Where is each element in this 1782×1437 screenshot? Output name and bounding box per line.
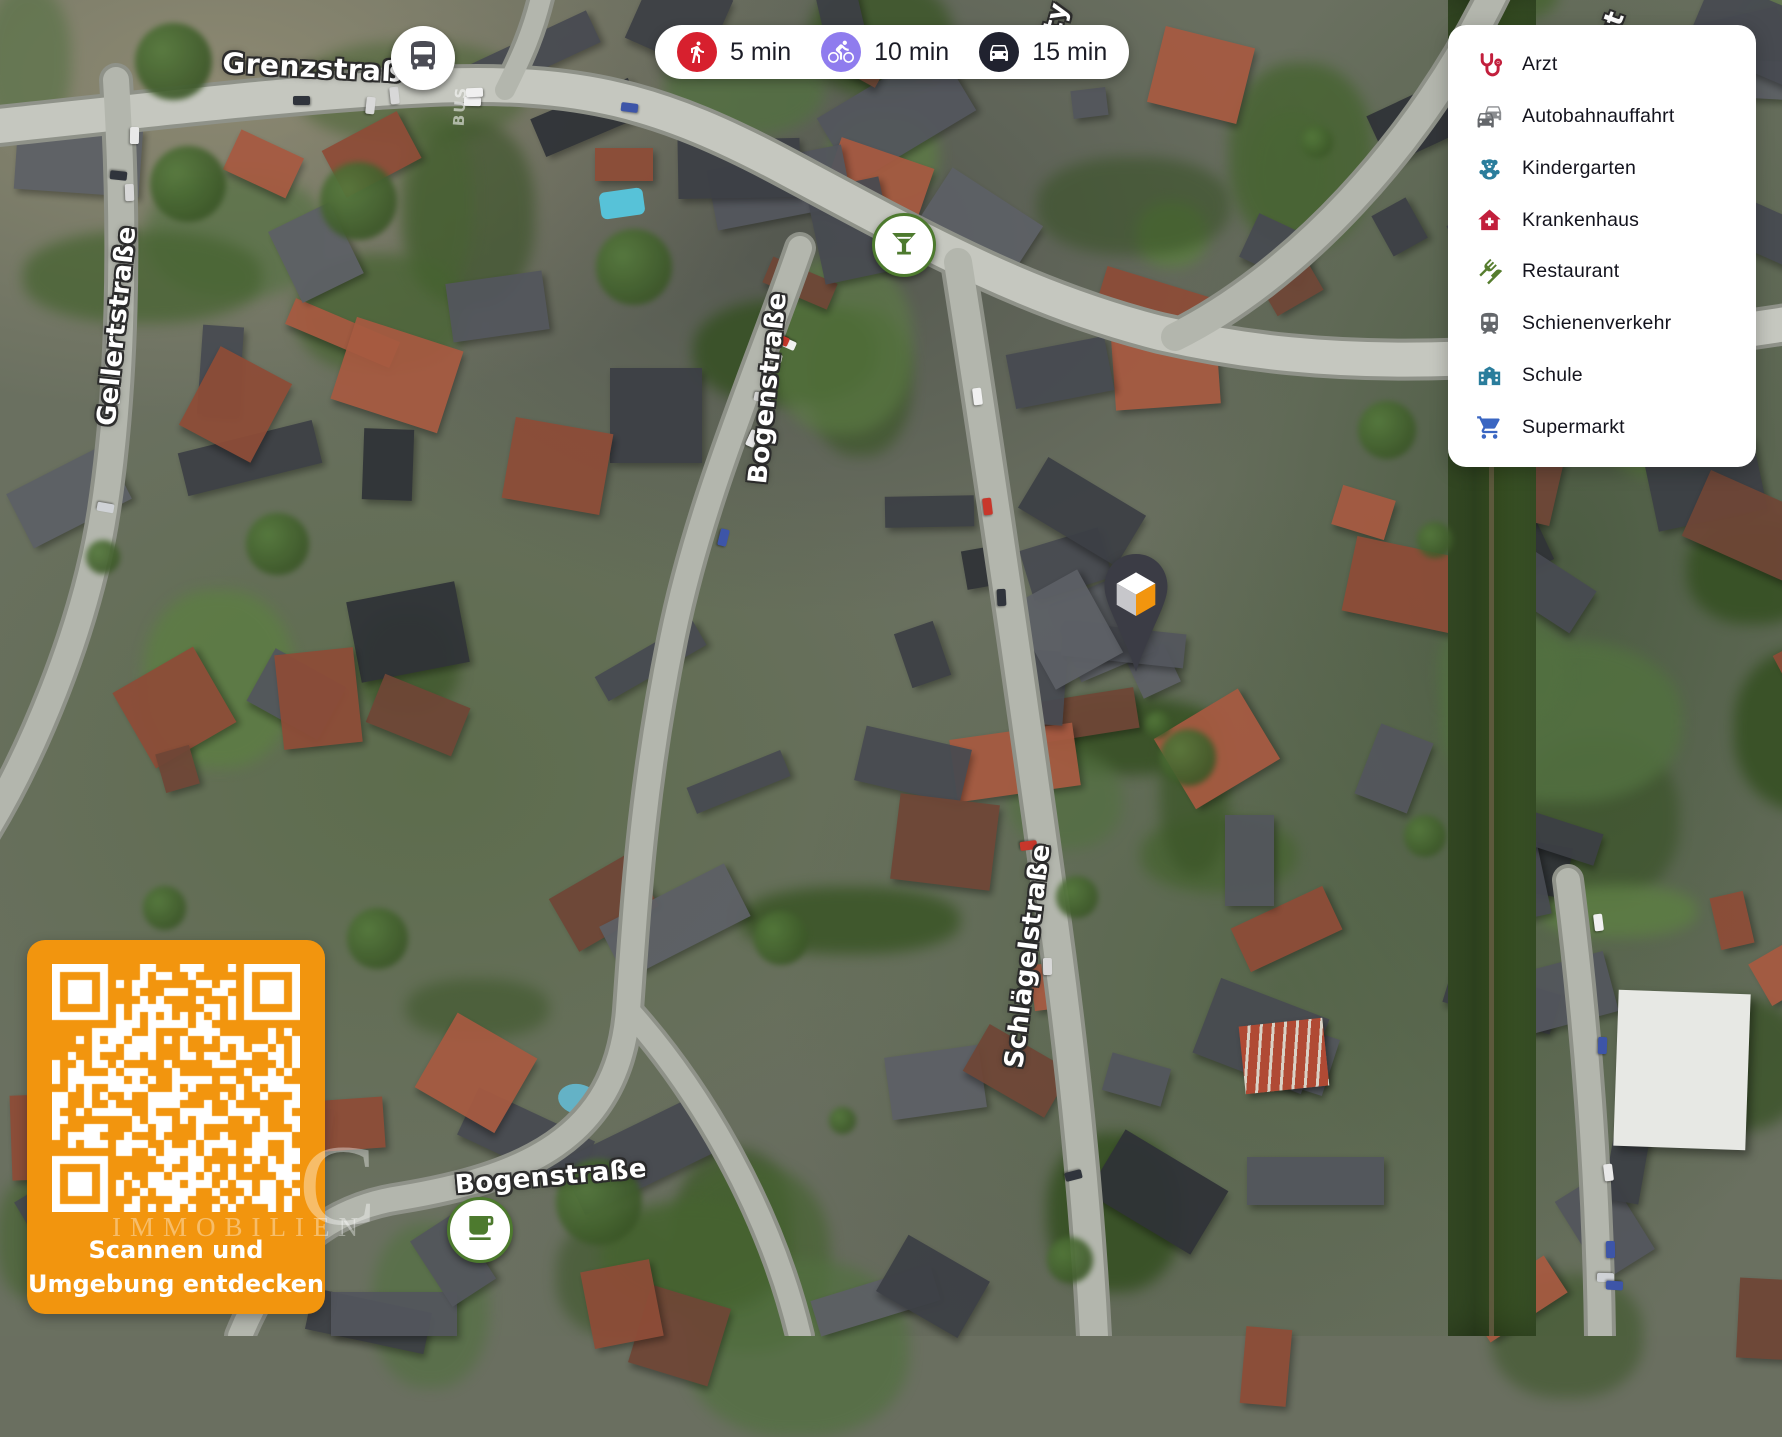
map-tree xyxy=(596,229,672,305)
map-tree xyxy=(86,540,120,574)
property-location-pin[interactable] xyxy=(1102,552,1170,683)
legend-item-krankenhaus[interactable]: Krankenhaus xyxy=(1476,207,1728,234)
map-car xyxy=(1064,1169,1083,1182)
legend-item-schienenverkehr[interactable]: Schienenverkehr xyxy=(1476,310,1728,337)
cafe-marker[interactable] xyxy=(447,1197,513,1263)
bus-icon xyxy=(405,38,441,79)
qr-caption-line1: Scannen und xyxy=(27,1236,325,1264)
legend-item-kindergarten[interactable]: Kindergarten xyxy=(1476,155,1728,182)
map-car xyxy=(1043,958,1052,975)
legend-item-schule[interactable]: Schule xyxy=(1476,362,1728,389)
teddy-bear-icon xyxy=(1476,155,1503,182)
car-icon xyxy=(979,32,1019,72)
map-car xyxy=(972,388,983,406)
walking-person-icon xyxy=(677,32,717,72)
map-car xyxy=(110,170,128,181)
legend-label: Krankenhaus xyxy=(1522,209,1639,232)
map-tree xyxy=(1358,401,1416,459)
map-car xyxy=(621,102,639,113)
stethoscope-icon xyxy=(1476,51,1503,78)
cyclist-icon xyxy=(821,32,861,72)
legend-item-autobahnauffahrt[interactable]: Autobahnauffahrt xyxy=(1476,103,1728,130)
map-tree xyxy=(246,513,309,576)
map-car xyxy=(366,96,377,114)
map-tree xyxy=(1404,815,1446,857)
legend-item-supermarkt[interactable]: Supermarkt xyxy=(1476,414,1728,441)
map-tree xyxy=(1047,1237,1093,1283)
map-tree xyxy=(754,911,809,966)
map-tree xyxy=(1417,522,1453,558)
map-car xyxy=(1606,1280,1623,1290)
car-time-label: 15 min xyxy=(1032,38,1107,67)
coffee-cup-icon xyxy=(464,1212,496,1249)
map-car xyxy=(1605,1241,1614,1258)
map-car xyxy=(996,589,1006,606)
map-tree xyxy=(829,1107,856,1134)
highway-cars-icon xyxy=(1476,103,1503,130)
travel-time-car: 15 min xyxy=(979,32,1107,72)
map-tree xyxy=(143,886,187,930)
train-icon xyxy=(1476,310,1503,337)
legend-label: Kindergarten xyxy=(1522,157,1636,180)
legend-label: Supermarkt xyxy=(1522,416,1625,439)
map-car xyxy=(1598,1036,1608,1053)
legend-label: Schienenverkehr xyxy=(1522,312,1671,335)
map-car xyxy=(293,96,310,105)
map-tree xyxy=(1145,711,1171,737)
walk-time-label: 5 min xyxy=(730,38,791,67)
bus-road-marking: BUS xyxy=(450,85,471,127)
map-tree xyxy=(347,908,408,969)
map-car xyxy=(125,184,135,201)
hospital-house-icon xyxy=(1476,207,1503,234)
cocktail-icon xyxy=(889,228,919,263)
cocktail-bar-marker[interactable] xyxy=(872,213,936,277)
qr-code xyxy=(52,964,300,1212)
qr-caption-line2: Umgebung entdecken xyxy=(27,1270,325,1298)
travel-time-pill: 5 min 10 min 15 min xyxy=(655,25,1129,79)
map-tree xyxy=(1056,876,1098,918)
qr-code-panel: Scannen und Umgebung entdecken xyxy=(27,940,325,1314)
map-car xyxy=(718,528,731,547)
bus-stop-marker[interactable] xyxy=(391,26,455,90)
map-car xyxy=(96,502,114,514)
map-car xyxy=(130,127,139,144)
legend-label: Schule xyxy=(1522,364,1583,387)
poi-legend-panel: Arzt Autobahnauffahrt xyxy=(1448,25,1756,467)
map-tree xyxy=(150,146,226,222)
map-tree xyxy=(1301,126,1333,158)
map-tree xyxy=(1160,729,1216,785)
legend-label: Autobahnauffahrt xyxy=(1522,105,1674,128)
fork-knife-icon xyxy=(1476,258,1503,285)
school-building-icon xyxy=(1476,362,1503,389)
map-tree xyxy=(320,162,398,240)
map-car xyxy=(389,86,400,104)
legend-label: Restaurant xyxy=(1522,260,1619,283)
map-car xyxy=(982,497,993,515)
bike-time-label: 10 min xyxy=(874,38,949,67)
map-building xyxy=(1240,1327,1292,1407)
shopping-cart-icon xyxy=(1476,414,1503,441)
travel-time-bike: 10 min xyxy=(821,32,949,72)
travel-time-walk: 5 min xyxy=(677,32,791,72)
map-car xyxy=(1593,914,1604,932)
legend-item-arzt[interactable]: Arzt xyxy=(1476,51,1728,78)
legend-label: Arzt xyxy=(1522,53,1557,76)
legend-item-restaurant[interactable]: Restaurant xyxy=(1476,258,1728,285)
map-tree xyxy=(135,23,212,100)
map-car xyxy=(1603,1163,1614,1181)
